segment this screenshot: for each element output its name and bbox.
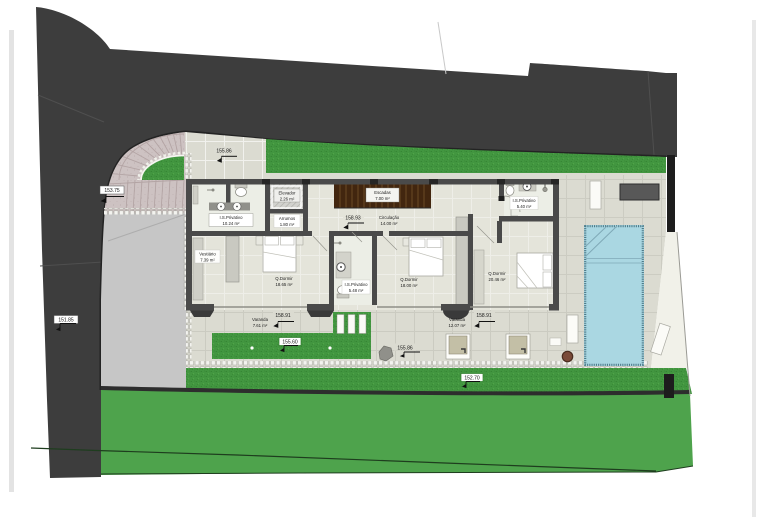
svg-text:5.40 m²: 5.40 m² [517, 204, 532, 209]
svg-text:155.86: 155.86 [397, 346, 413, 352]
svg-text:153.75: 153.75 [104, 188, 120, 194]
svg-text:Q.Dormir: Q.Dormir [275, 276, 293, 281]
svg-text:14.00 m²: 14.00 m² [381, 221, 399, 226]
svg-text:I.S.Privativo: I.S.Privativo [345, 282, 369, 287]
svg-text:Escadas: Escadas [374, 190, 390, 195]
svg-text:152.70: 152.70 [464, 376, 480, 382]
svg-text:Varanda: Varanda [252, 317, 269, 322]
svg-text:Vestiário: Vestiário [199, 252, 216, 257]
svg-text:20.46 m²: 20.46 m² [489, 277, 507, 282]
svg-text:Q.Dormir: Q.Dormir [400, 277, 418, 282]
svg-text:155.60: 155.60 [282, 340, 298, 346]
svg-text:18.65 m²: 18.65 m² [276, 282, 294, 287]
svg-text:I.S.Privativo: I.S.Privativo [220, 215, 244, 220]
svg-text:I.S.Privativo: I.S.Privativo [513, 198, 537, 203]
svg-text:1.80 m²: 1.80 m² [280, 222, 295, 227]
svg-text:158.91: 158.91 [275, 313, 291, 319]
svg-text:12.07 m²: 12.07 m² [449, 323, 467, 328]
svg-text:10.24 m²: 10.24 m² [223, 221, 241, 226]
svg-text:7.61 m²: 7.61 m² [253, 323, 268, 328]
svg-text:7.39 m²: 7.39 m² [200, 258, 215, 263]
svg-text:151.85: 151.85 [58, 318, 74, 324]
svg-text:158.93: 158.93 [345, 216, 361, 222]
svg-text:7.00 m²: 7.00 m² [375, 196, 390, 201]
svg-text:Varanda: Varanda [449, 317, 466, 322]
svg-text:Elevador: Elevador [279, 191, 297, 196]
svg-text:2.26 m²: 2.26 m² [280, 197, 295, 202]
svg-text:155.86: 155.86 [216, 149, 232, 155]
svg-text:18.00 m²: 18.00 m² [401, 283, 419, 288]
svg-text:Arrumos: Arrumos [279, 216, 295, 221]
svg-text:Circulação: Circulação [379, 215, 400, 220]
svg-text:5.48 m²: 5.48 m² [349, 288, 364, 293]
svg-text:158.91: 158.91 [476, 313, 492, 319]
svg-text:Q.Dormir: Q.Dormir [488, 271, 506, 276]
